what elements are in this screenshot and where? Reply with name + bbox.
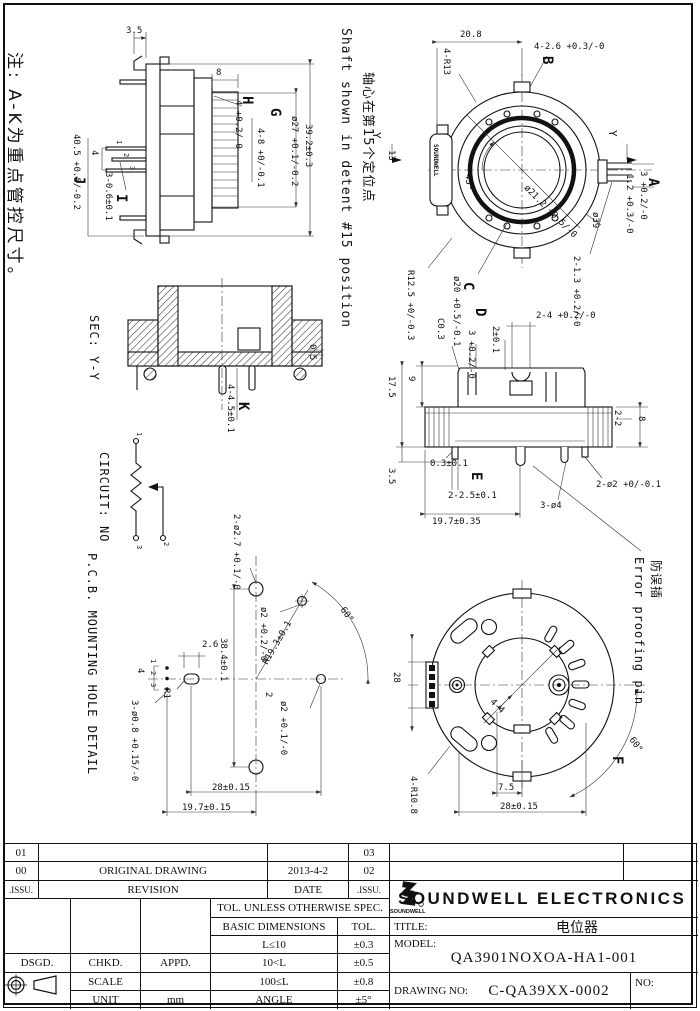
view-letter-k: K xyxy=(236,402,250,410)
pcb-pin-2: 2 xyxy=(149,671,156,675)
section-label: SEC: Y-Y xyxy=(88,315,100,381)
view-letter-e: E xyxy=(469,472,483,480)
issu-header-right: .ISSU. xyxy=(349,881,390,899)
dim-8: 8 xyxy=(216,69,221,78)
brand-tab-text: SOUNDWELL xyxy=(432,144,438,177)
view-letter-j: J xyxy=(72,176,86,184)
pcb-label: P.C.B. MOUNTING HOLE DETAIL xyxy=(86,553,98,775)
dim-1-2: 1.2 +0.3/-0 xyxy=(624,174,633,234)
dim-2-2: 2-2 xyxy=(612,410,621,426)
pin-2-label: 2 xyxy=(122,153,129,157)
view-letter-d: D xyxy=(473,308,487,316)
dim-4-4-5: 4-4.5±0.1 xyxy=(225,384,234,433)
dim-r12-5: R12.5 +0/-0.3 xyxy=(405,270,414,340)
rev-row-03: 03 xyxy=(349,844,390,862)
dim-2-o2: 2-ø2 +0/-0.1 xyxy=(596,481,661,490)
model-label: MODEL: xyxy=(390,936,698,950)
dim-28-015-pcb: 28±0.15 xyxy=(212,784,250,793)
dim-3-02-ed: 3 +0.2/-0 xyxy=(466,330,475,379)
rev-row-00: 00 xyxy=(4,862,39,881)
dim-2-slot: 2 xyxy=(263,692,272,697)
projection-symbol-cell xyxy=(4,973,71,1009)
dim-4-r13: 4-R13 xyxy=(441,48,450,75)
dim-39-2: 39.2±0.3 xyxy=(303,124,312,167)
main-note: 注: A-K为重点管控尺寸。 xyxy=(5,52,22,287)
tol-range-3: 100≤L xyxy=(211,973,338,991)
dim-4: 4 xyxy=(89,150,98,155)
dim-0-5: 0.5 xyxy=(307,344,316,360)
appd-sign-cell xyxy=(141,899,211,954)
rev-extra-03 xyxy=(624,844,698,862)
pcb-pin-3: 3 xyxy=(149,683,156,687)
dim-2-6: 2.6 xyxy=(202,641,218,650)
dim-7-5: 7.5 xyxy=(498,784,514,793)
title-value: 电位器 xyxy=(456,918,698,936)
soundwell-logo-icon: SOUNDWELL xyxy=(390,881,430,915)
date-header: DATE xyxy=(268,881,349,899)
view-letter-b: B xyxy=(540,56,554,64)
tol-value-1: ±0.3 xyxy=(338,936,390,954)
view-letter-g: G xyxy=(268,108,282,116)
title-label: TITLE: xyxy=(390,918,456,936)
dim-13: 13 xyxy=(386,150,395,161)
dim-9: 9 xyxy=(406,376,415,381)
scale-label: SCALE xyxy=(71,973,141,991)
dim-8-ed: 8 xyxy=(636,416,645,421)
section-y-left: Y xyxy=(371,132,382,139)
tol-value-4: ±5° xyxy=(338,991,390,1009)
dim-17-5: 17.5 xyxy=(386,376,395,398)
drawing-no-label: DRAWING NO: xyxy=(390,985,468,997)
rev-desc-03 xyxy=(390,844,624,862)
dim-g-value: ø27 +0.1/-0.2 xyxy=(289,116,298,186)
tolerance-header: TOL. UNLESS OTHERWISE SPEC. xyxy=(211,899,390,918)
dim-4-pcb: 4 xyxy=(135,668,144,673)
dim-h-value: 4 +0.2/-0 xyxy=(233,100,242,149)
chkd-label: CHKD. xyxy=(71,954,141,973)
rev-date-01 xyxy=(268,844,349,862)
unit-label: UNIT xyxy=(71,991,141,1009)
rev-row-02: 02 xyxy=(349,862,390,881)
terminal-1: 1 xyxy=(135,432,142,436)
drawing-no-value: C-QA39XX-0002 xyxy=(468,983,630,1000)
issu-header-left: .ISSU. xyxy=(4,881,39,899)
error-pin-note-en: Error proofing pin xyxy=(633,557,645,705)
view-letter-c: C xyxy=(461,282,475,290)
rev-desc-02 xyxy=(390,862,624,881)
dim-3-o4: 3-ø4 xyxy=(540,502,562,511)
rev-date-00: 2013-4-2 xyxy=(268,862,349,881)
section-y-right: Y xyxy=(607,130,618,137)
view-letter-i: I xyxy=(114,194,128,202)
dim-45deg: 45° xyxy=(463,174,472,190)
logo-wordmark: SOUNDWELL xyxy=(390,909,426,915)
scale-value xyxy=(141,973,211,991)
tol-range-2: 10<L xyxy=(211,954,338,973)
dim-2-2-5: 2-2.5±0.1 xyxy=(448,492,497,501)
tol-range-4: ANGLE xyxy=(211,991,338,1009)
dim-2-o2-7: 2-ø2.7 +0.1/-0 xyxy=(231,514,240,590)
dim-3-0-6: 3-0.6±0.1 xyxy=(103,172,112,221)
model-cell: MODEL: QA3901NOXOA-HA1-001 xyxy=(390,936,698,973)
pin-1-label: 1 xyxy=(115,140,122,144)
dim-3-5-ed: 3.5 xyxy=(386,468,395,484)
appd-label: APPD. xyxy=(141,954,211,973)
rev-desc-00: ORIGINAL DRAWING xyxy=(39,862,268,881)
back-view xyxy=(408,580,645,816)
dim-28-back: 28 xyxy=(391,672,400,683)
dim-o2-right: ø2 +0.1/-0 xyxy=(278,701,287,755)
dim-20-8: 20.8 xyxy=(460,31,482,40)
basic-dimensions-header: BASIC DIMENSIONS xyxy=(211,918,338,936)
chkd-sign-cell xyxy=(71,899,141,954)
dim-2-4: 2-4 +0.2/-0 xyxy=(536,312,596,321)
dim-c0-3: C0.3 xyxy=(435,318,444,340)
company-cell: SOUNDWELL SOUNDWELL ELECTRONICS xyxy=(390,881,698,918)
dim-r1: R1 xyxy=(161,688,170,699)
revision-header: REVISION xyxy=(39,881,268,899)
dim-0-3: 0.3±0.1 xyxy=(430,460,468,469)
dim-19-7-015: 19.7±0.15 xyxy=(182,804,231,813)
tol-value-3: ±0.8 xyxy=(338,973,390,991)
dim-38-4: 38.4±0.1 xyxy=(218,638,227,681)
tol-header: TOL. xyxy=(338,918,390,936)
pcb-detail xyxy=(148,556,368,816)
drawing-no-cell: DRAWING NO: C-QA39XX-0002 xyxy=(390,973,631,1009)
dsgd-label: DSGD. xyxy=(4,954,71,973)
pcb-pin-1: 1 xyxy=(149,659,156,663)
terminal-2: 2 xyxy=(162,542,169,546)
error-pin-note-cn: 防误插 xyxy=(650,560,662,599)
dim-3-5: 3.5 xyxy=(126,27,142,36)
dim-4-8: 4-8 +0/-0.1 xyxy=(255,128,264,188)
drawing-sheet: 注: A-K为重点管控尺寸。 Shaft shown in detent #15… xyxy=(0,0,700,1011)
projection-angle-icon xyxy=(4,973,60,997)
terminal-3: 3 xyxy=(135,545,142,549)
view-letter-h: H xyxy=(240,96,254,104)
dsgd-sign-cell xyxy=(4,899,71,954)
tol-value-2: ±0.5 xyxy=(338,954,390,973)
company-name: SOUNDWELL ELECTRONICS xyxy=(398,889,686,909)
rev-desc-01 xyxy=(39,844,268,862)
circuit-label: CIRCUIT: NO xyxy=(98,452,110,542)
unit-value: mm xyxy=(141,991,211,1009)
dim-4-r10-8: 4-R10.8 xyxy=(408,776,417,814)
dim-28-015-back: 28±0.15 xyxy=(500,803,538,812)
dim-2-01: 2±0.1 xyxy=(490,326,499,353)
dim-19-7-035: 19.7±0.35 xyxy=(432,518,481,527)
dim-20dia: ø20 +0.5/-0.1 xyxy=(451,276,460,346)
circuit-symbol xyxy=(131,439,166,541)
dim-40-5: 40.5 +0.5/-0.2 xyxy=(71,134,80,210)
rev-row-01: 01 xyxy=(4,844,39,862)
side-view xyxy=(88,32,314,244)
dim-4-2-6: 4-2.6 +0.3/-0 xyxy=(534,43,604,52)
no-cell: NO: xyxy=(631,973,698,1009)
pin-3-label: 3 xyxy=(128,166,135,170)
rev-extra-02 xyxy=(624,862,698,881)
dim-3-o0-8: 3-ø0.8 +0.15/-0 xyxy=(129,700,138,781)
title-block: 01 03 00 ORIGINAL DRAWING 2013-4-2 02 .I… xyxy=(3,843,697,1008)
shaft-note-en: Shaft shown in detent #15 position xyxy=(339,28,352,328)
view-letter-f: F xyxy=(610,756,624,764)
model-value: QA3901NOXOA-HA1-001 xyxy=(390,950,698,967)
view-letter-a: A xyxy=(646,178,660,186)
dim-39dia: ø39 xyxy=(590,212,599,228)
tol-range-1: L≤10 xyxy=(211,936,338,954)
